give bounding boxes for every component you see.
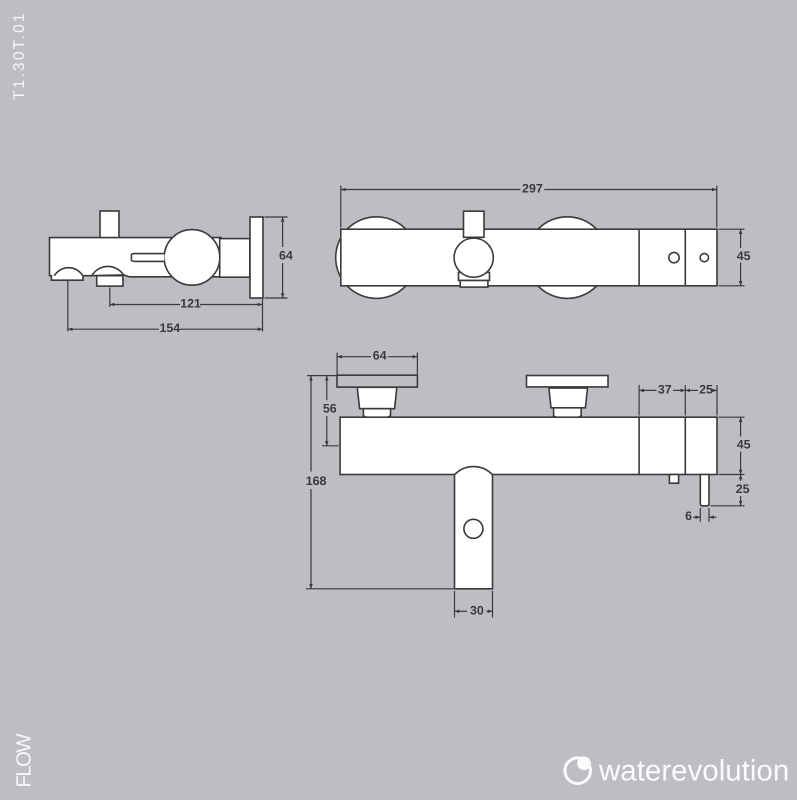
svg-text:168: 168 xyxy=(306,474,327,488)
svg-text:45: 45 xyxy=(737,438,751,452)
svg-text:30: 30 xyxy=(470,603,484,617)
svg-text:waterevolution: waterevolution xyxy=(598,755,789,788)
svg-text:56: 56 xyxy=(323,402,337,416)
svg-text:121: 121 xyxy=(180,297,201,311)
svg-text:FLOW: FLOW xyxy=(13,733,36,788)
svg-text:25: 25 xyxy=(736,482,750,496)
svg-text:37: 37 xyxy=(658,382,672,396)
svg-text:64: 64 xyxy=(373,349,387,363)
svg-text:154: 154 xyxy=(159,321,180,335)
svg-text:64: 64 xyxy=(279,249,293,263)
svg-text:297: 297 xyxy=(522,182,543,196)
svg-text:45: 45 xyxy=(737,249,751,263)
svg-text:6: 6 xyxy=(685,509,692,523)
svg-text:T1.30T.01: T1.30T.01 xyxy=(11,11,28,100)
svg-text:25: 25 xyxy=(699,382,713,396)
